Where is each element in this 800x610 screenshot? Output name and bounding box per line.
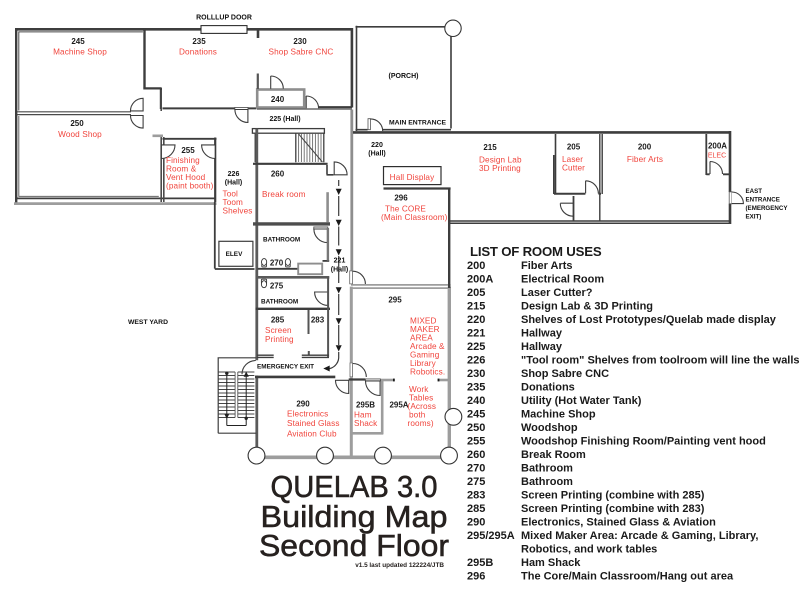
svg-text:Fiber Arts: Fiber Arts [521, 260, 573, 272]
svg-text:v1.5 last updated 122224/JTB: v1.5 last updated 122224/JTB [355, 562, 444, 569]
svg-text:205: 205 [467, 287, 485, 299]
svg-text:Electronics, Stained Glass & A: Electronics, Stained Glass & Aviation [521, 517, 716, 529]
svg-text:Donations: Donations [179, 48, 217, 57]
svg-text:Electronics: Electronics [287, 410, 328, 419]
svg-text:EXIT): EXIT) [746, 214, 762, 221]
svg-text:Shelves: Shelves [223, 207, 253, 216]
svg-text:Electrical Room: Electrical Room [521, 274, 604, 286]
svg-text:(Hall): (Hall) [368, 151, 386, 158]
svg-text:200: 200 [467, 260, 485, 272]
svg-text:260: 260 [467, 449, 485, 461]
svg-text:226: 226 [467, 355, 485, 367]
svg-text:225: 225 [467, 341, 485, 353]
svg-text:Screen: Screen [265, 326, 292, 335]
svg-text:295: 295 [388, 296, 402, 305]
svg-text:260: 260 [271, 170, 285, 179]
svg-text:Woodshop: Woodshop [521, 422, 578, 434]
svg-text:Bathroom: Bathroom [521, 463, 573, 475]
svg-text:Screen Printing (combine with: Screen Printing (combine with 283) [521, 503, 705, 515]
svg-text:Machine Shop: Machine Shop [521, 409, 596, 421]
svg-text:3D Printing: 3D Printing [479, 164, 521, 173]
svg-text:240: 240 [467, 395, 485, 407]
svg-text:295B: 295B [467, 557, 493, 569]
svg-text:Shack: Shack [354, 419, 378, 428]
svg-text:(paint booth): (paint booth) [166, 182, 214, 191]
svg-text:WEST YARD: WEST YARD [128, 319, 168, 326]
svg-text:EMERGENCY EXIT: EMERGENCY EXIT [257, 364, 314, 371]
svg-text:275: 275 [270, 282, 284, 291]
svg-text:215: 215 [467, 301, 485, 313]
svg-text:Printing: Printing [265, 335, 294, 344]
svg-text:245: 245 [467, 409, 485, 421]
svg-text:Laser Cutter?: Laser Cutter? [521, 287, 593, 299]
svg-text:285: 285 [467, 503, 485, 515]
svg-text:ROLLLUP DOOR: ROLLLUP DOOR [196, 15, 252, 22]
svg-text:Mixed Maker Area: Arcade & Gam: Mixed Maker Area: Arcade & Gaming, Libra… [521, 530, 758, 542]
svg-text:250: 250 [467, 422, 485, 434]
svg-text:ELEC: ELEC [708, 153, 726, 160]
svg-text:Bathroom: Bathroom [521, 476, 573, 488]
svg-text:The Core/Main Classroom/Hang o: The Core/Main Classroom/Hang out area [521, 571, 734, 583]
svg-text:Hallway: Hallway [521, 341, 563, 353]
svg-text:(Main Classroom): (Main Classroom) [381, 213, 448, 222]
svg-text:MAIN ENTRANCE: MAIN ENTRANCE [389, 120, 446, 127]
svg-text:290: 290 [296, 400, 310, 409]
svg-text:290: 290 [467, 517, 485, 529]
svg-text:285: 285 [271, 316, 285, 325]
svg-text:Donations: Donations [521, 382, 575, 394]
svg-text:220: 220 [467, 314, 485, 326]
svg-text:Break Room: Break Room [521, 449, 586, 461]
svg-text:Screen Printing (combine with: Screen Printing (combine with 285) [521, 490, 705, 502]
svg-text:283: 283 [311, 316, 325, 325]
svg-text:Wood Shop: Wood Shop [58, 130, 102, 139]
svg-text:220: 220 [371, 142, 383, 149]
svg-text:"Tool room" Shelves from toolr: "Tool room" Shelves from toolroom will l… [521, 355, 800, 367]
svg-text:Stained Glass: Stained Glass [287, 419, 340, 428]
svg-text:Aviation Club: Aviation Club [287, 430, 337, 439]
svg-text:LIST OF ROOM USES: LIST OF ROOM USES [470, 244, 602, 259]
svg-text:221: 221 [467, 328, 485, 340]
svg-text:Break room: Break room [262, 190, 306, 199]
svg-text:235: 235 [192, 37, 206, 46]
svg-text:(Hall): (Hall) [331, 267, 349, 274]
svg-text:270: 270 [467, 463, 485, 475]
svg-text:Ham Shack: Ham Shack [521, 557, 581, 569]
svg-text:250: 250 [70, 119, 84, 128]
svg-text:200A: 200A [708, 142, 727, 151]
svg-text:BATHROOM: BATHROOM [263, 237, 300, 244]
svg-text:rooms): rooms) [408, 419, 434, 428]
svg-text:Hall Display: Hall Display [390, 173, 435, 182]
svg-text:(EMERGENCY: (EMERGENCY [746, 205, 789, 212]
svg-text:221: 221 [334, 258, 346, 265]
svg-text:226: 226 [228, 171, 240, 178]
svg-text:BATHROOM: BATHROOM [261, 299, 298, 306]
svg-text:Shelves of Lost Prototypes/Que: Shelves of Lost Prototypes/Quelab made d… [521, 314, 777, 326]
svg-text:(Hall): (Hall) [225, 180, 243, 187]
svg-text:Robotics.: Robotics. [410, 368, 445, 377]
svg-text:ELEV: ELEV [226, 251, 243, 258]
svg-text:Machine Shop: Machine Shop [53, 48, 107, 57]
svg-text:235: 235 [467, 382, 485, 394]
svg-text:230: 230 [293, 37, 307, 46]
svg-text:255: 255 [181, 146, 195, 155]
svg-text:Design Lab & 3D Printing: Design Lab & 3D Printing [521, 301, 653, 313]
svg-text:215: 215 [483, 143, 497, 152]
svg-text:EAST: EAST [746, 188, 763, 195]
svg-text:Hallway: Hallway [521, 328, 563, 340]
svg-text:295A: 295A [389, 401, 408, 410]
svg-text:230: 230 [467, 368, 485, 380]
svg-text:240: 240 [271, 95, 285, 104]
svg-text:270: 270 [270, 259, 284, 268]
svg-text:Cutter: Cutter [562, 164, 585, 173]
svg-text:Robotics, and work tables: Robotics, and work tables [521, 544, 657, 556]
svg-text:Fiber Arts: Fiber Arts [627, 155, 663, 164]
svg-text:275: 275 [467, 476, 485, 488]
svg-text:205: 205 [567, 143, 581, 152]
svg-text:Utility (Hot Water Tank): Utility (Hot Water Tank) [521, 395, 642, 407]
svg-text:Woodshop Finishing Room/Painti: Woodshop Finishing Room/Painting vent ho… [521, 436, 766, 448]
svg-text:(PORCH): (PORCH) [389, 73, 419, 80]
svg-text:200: 200 [638, 143, 652, 152]
svg-text:255: 255 [467, 436, 485, 448]
svg-text:225 (Hall): 225 (Hall) [269, 116, 300, 123]
svg-text:Shop Sabre CNC: Shop Sabre CNC [269, 48, 334, 57]
svg-text:296: 296 [394, 194, 408, 203]
svg-text:Second Floor: Second Floor [259, 529, 449, 563]
svg-text:200A: 200A [467, 274, 493, 286]
svg-text:295/295A: 295/295A [467, 530, 515, 542]
svg-text:283: 283 [467, 490, 485, 502]
svg-text:295B: 295B [356, 401, 375, 410]
svg-text:QUELAB 3.0: QUELAB 3.0 [271, 470, 438, 504]
svg-text:Shop Sabre CNC: Shop Sabre CNC [521, 368, 609, 380]
svg-text:245: 245 [71, 37, 85, 46]
svg-text:ENTRANCE: ENTRANCE [746, 197, 780, 204]
svg-text:296: 296 [467, 571, 485, 583]
